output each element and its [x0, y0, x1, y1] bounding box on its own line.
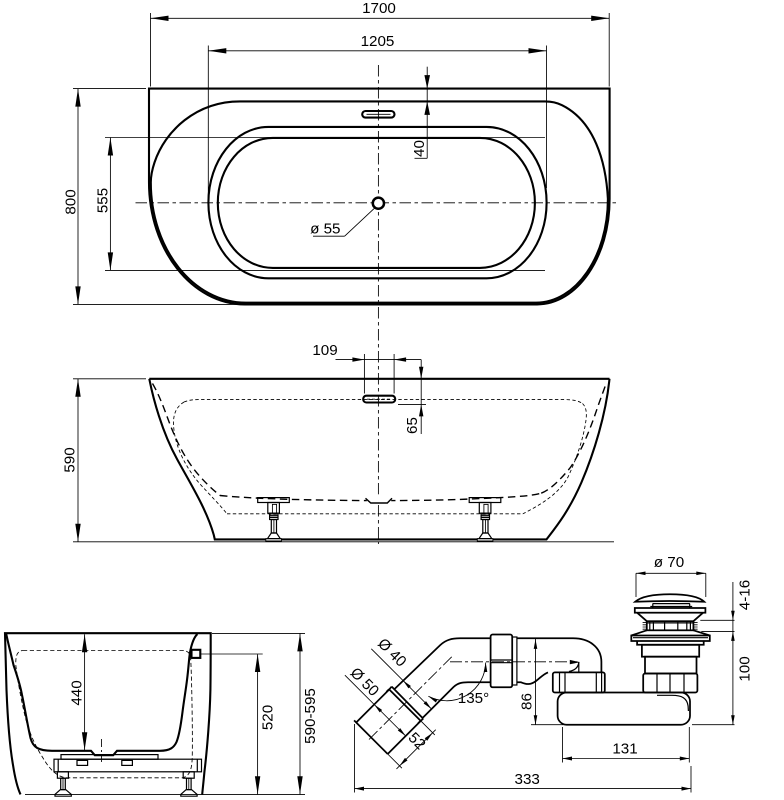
svg-text:ø 55: ø 55	[310, 221, 340, 238]
svg-text:555: 555	[94, 188, 111, 213]
svg-text:333: 333	[515, 771, 540, 788]
svg-text:86: 86	[519, 693, 536, 710]
svg-text:131: 131	[612, 741, 637, 758]
svg-text:1700: 1700	[362, 0, 396, 17]
svg-text:590-595: 590-595	[302, 688, 319, 744]
svg-text:135°: 135°	[458, 690, 489, 707]
svg-text:40: 40	[411, 140, 428, 157]
svg-text:800: 800	[63, 189, 80, 214]
svg-text:109: 109	[312, 342, 337, 359]
svg-text:65: 65	[404, 417, 421, 434]
svg-text:4-16: 4-16	[737, 580, 754, 610]
svg-text:100: 100	[737, 656, 754, 681]
svg-text:1205: 1205	[361, 33, 395, 50]
svg-text:440: 440	[68, 680, 85, 705]
svg-text:520: 520	[260, 705, 277, 730]
svg-text:590: 590	[62, 447, 79, 472]
svg-text:ø 70: ø 70	[654, 554, 684, 571]
